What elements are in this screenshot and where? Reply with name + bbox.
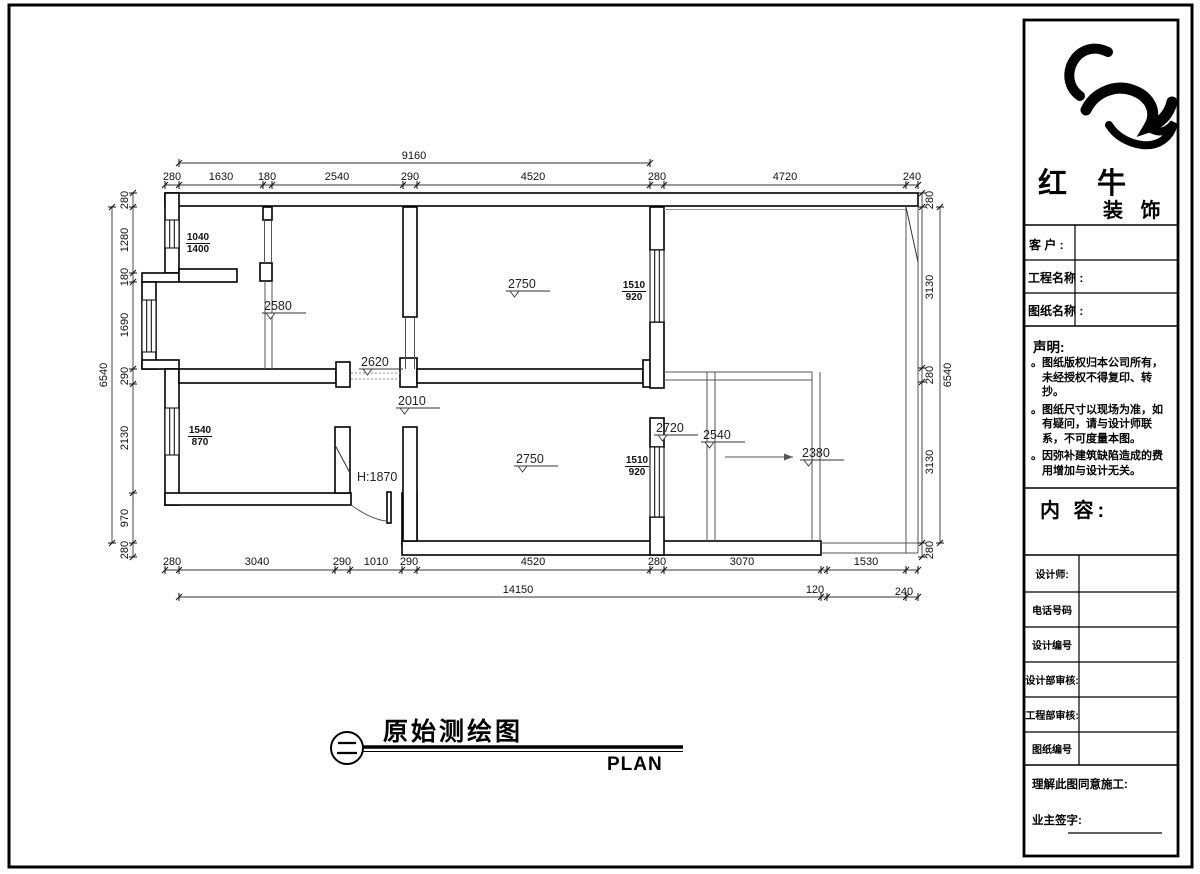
agree-label: 理解此图同意施工: (1032, 776, 1128, 792)
brand-subname: 装 饰 (1103, 194, 1167, 223)
statement-list: 。 图纸版权归本公司所有，未经授权不得复印、转抄。 。 图纸尺寸以现场为准，如有… (1031, 356, 1173, 481)
dim-right: 280 (924, 178, 936, 222)
dim-top: 290 (388, 171, 432, 183)
dim-right: 280 (924, 528, 936, 572)
designer-label: 设计师: (1025, 566, 1079, 581)
dim-top: 280 (635, 171, 679, 183)
drawing-sheet: 9160 280 1630 180 2540 290 4520 280 4720… (0, 0, 1200, 874)
customer-label: 客 户 : (1029, 236, 1064, 253)
window-size-label: 1540 870 (183, 425, 217, 448)
dim-bottom-extra: 240 (882, 586, 926, 598)
dim-left-overall: 6540 (98, 353, 110, 397)
dim-bottom: 4520 (511, 556, 555, 568)
dim-left: 280 (119, 528, 131, 572)
ceiling-height-label: 2750 (508, 277, 536, 291)
dim-top: 280 (150, 171, 194, 183)
statement-item: 。 图纸尺寸以现场为准，如有疑问，请与设计师联系，不可度量本图。 (1031, 403, 1173, 447)
design-review-label: 设计部审核: (1025, 672, 1079, 687)
dim-left: 2130 (119, 416, 131, 460)
window-size-label: 1510 920 (620, 455, 654, 478)
statement-item: 。 图纸版权归本公司所有，未经授权不得复印、转抄。 (1031, 356, 1173, 400)
door-height-label: H:1870 (357, 470, 397, 484)
window-size-label: 1040 1400 (181, 232, 215, 255)
dim-top: 1630 (199, 171, 243, 183)
dim-right: 3130 (924, 440, 936, 484)
design-no-label: 设计编号 (1025, 637, 1079, 652)
dim-bottom: 280 (635, 556, 679, 568)
dim-right: 280 (924, 353, 936, 397)
ceiling-height-label: 2750 (516, 452, 544, 466)
dim-top: 4520 (511, 171, 555, 183)
dim-right-overall: 6540 (942, 353, 954, 397)
ceiling-height-label: 2580 (264, 299, 292, 313)
dim-left: 180 (119, 255, 131, 299)
dim-left: 290 (119, 354, 131, 398)
dim-top-overall: 9160 (392, 150, 436, 162)
dim-bottom: 3040 (235, 556, 279, 568)
dim-top: 180 (245, 171, 289, 183)
statement-item: 。 因弥补建筑缺陷造成的费用增加与设计无关。 (1031, 449, 1173, 478)
dim-bottom: 290 (387, 556, 431, 568)
ceiling-height-label: 2620 (361, 355, 389, 369)
plan-subtitle: PLAN (607, 754, 663, 776)
dim-bottom: 280 (150, 556, 194, 568)
dim-bottom: 3070 (720, 556, 764, 568)
window-size-label: 1510 920 (617, 280, 651, 303)
dim-left: 280 (119, 178, 131, 222)
floor-plan-linework (0, 0, 1200, 874)
statement-heading: 声明: (1033, 336, 1065, 356)
drawing-name-label: 图纸名称 : (1028, 302, 1083, 319)
drawing-no-label: 图纸编号 (1025, 741, 1079, 756)
plan-title: 原始测绘图 (383, 712, 523, 748)
dim-top: 4720 (763, 171, 807, 183)
walls (142, 193, 918, 555)
brand-logo-icon (1069, 49, 1174, 146)
dim-bottom: 1530 (844, 556, 888, 568)
phone-label: 电话号码 (1025, 602, 1079, 617)
engineering-review-label: 工程部审核: (1025, 707, 1079, 722)
ceiling-height-label: 2010 (398, 394, 426, 408)
project-name-label: 工程名称 : (1028, 269, 1083, 286)
dim-left: 1690 (119, 303, 131, 347)
dim-bottom-overall: 14150 (496, 584, 540, 596)
dim-top: 2540 (315, 171, 359, 183)
ceiling-height-label: 2380 (802, 446, 830, 460)
dim-bottom-extra: 120 (793, 584, 837, 596)
dim-right: 3130 (924, 265, 936, 309)
ceiling-height-label: 2720 (656, 421, 684, 435)
content-label: 内 容: (1040, 494, 1108, 523)
owner-signature-label: 业主签字: (1032, 812, 1082, 828)
ceiling-height-label: 2540 (703, 428, 731, 442)
